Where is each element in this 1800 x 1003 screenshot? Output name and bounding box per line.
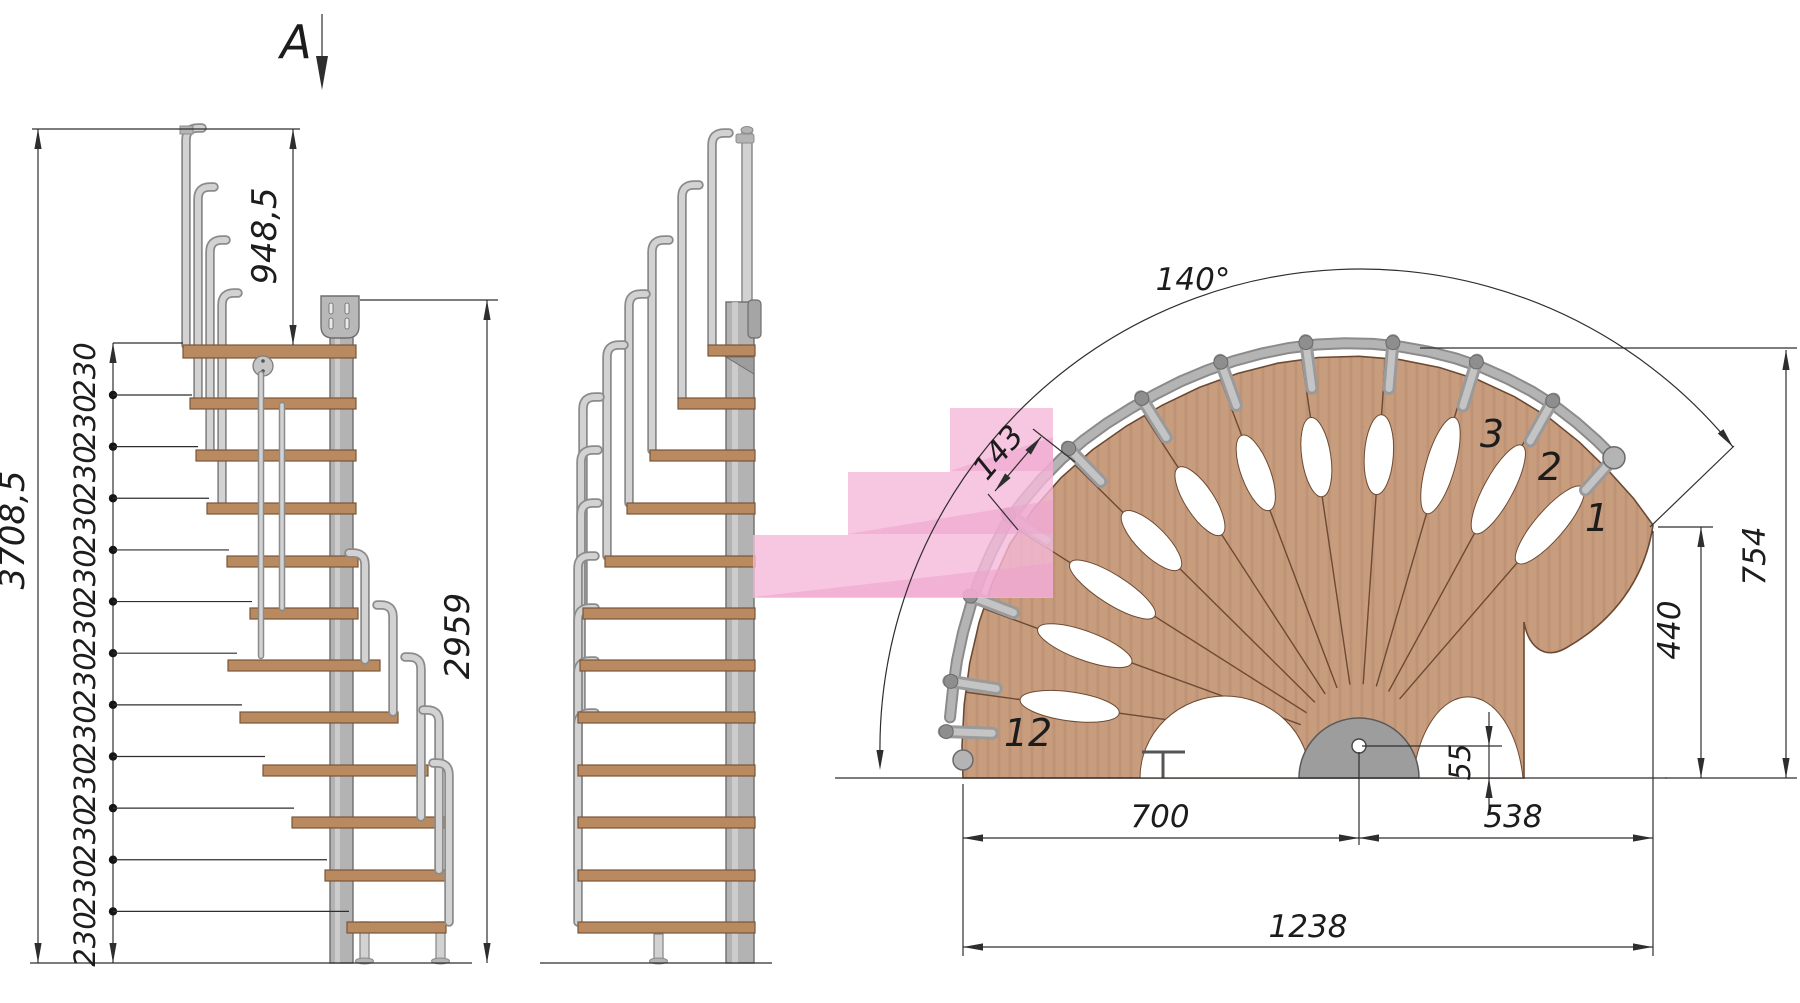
rise-label: 230 <box>68 807 102 862</box>
dimension-arrow <box>1485 778 1492 798</box>
dimension-arrow <box>1697 758 1704 778</box>
rise-label: 230 <box>68 549 102 604</box>
dimension-arrow <box>483 943 490 963</box>
bracket-slot <box>329 318 333 329</box>
step-number-2: 2 <box>1538 445 1562 489</box>
tread <box>250 608 358 619</box>
tread <box>578 870 755 881</box>
dimension-arrow <box>1633 943 1653 950</box>
staircase-technical-drawing: A 3708,5 948,5 2959 230 230 230 230 230 … <box>0 0 1800 1003</box>
rail-clamp <box>180 126 193 134</box>
tread <box>583 608 755 619</box>
tread <box>650 450 755 461</box>
span-right-label: 538 <box>1483 799 1542 835</box>
tread <box>228 660 380 671</box>
tread <box>325 870 452 881</box>
sector-radial <box>1650 446 1734 527</box>
tread <box>578 712 755 723</box>
dimension-arrow <box>1782 350 1789 370</box>
tread <box>196 450 356 461</box>
step-number-1: 1 <box>1585 496 1609 540</box>
bracket-slot <box>345 318 349 329</box>
handrail-baluster <box>629 294 646 503</box>
rail-connector <box>1214 355 1228 369</box>
handrail-baluster <box>682 185 699 398</box>
tread <box>678 398 755 409</box>
section-arrow-head <box>316 56 328 90</box>
bracket-slot <box>329 303 333 314</box>
handrail-baluster <box>652 240 669 450</box>
span-total-label: 1238 <box>1269 909 1348 945</box>
tread <box>227 556 358 567</box>
rail-clamp <box>736 134 754 143</box>
tread <box>240 712 398 723</box>
tread <box>263 765 428 776</box>
rail-connector <box>1546 394 1560 408</box>
rise-label: 230 <box>68 705 102 760</box>
handrail-baluster <box>377 605 393 712</box>
dimension-arrow <box>1697 527 1704 547</box>
handrail-baluster <box>607 345 624 556</box>
dimension-arrow <box>289 129 296 149</box>
dimension-arrow <box>1782 758 1789 778</box>
tread <box>578 765 755 776</box>
overall-height-label: 3708,5 <box>0 471 33 590</box>
rail-connector <box>939 725 953 739</box>
rise-label: 230 <box>68 859 102 914</box>
pole-offset-label: 55 <box>1443 744 1477 781</box>
rise-label: 230 <box>68 445 102 500</box>
tread <box>580 660 755 671</box>
disc-screw <box>261 359 265 363</box>
mount-bracket-edge <box>748 300 761 338</box>
mount-bracket <box>321 296 359 338</box>
tip-height-label: 440 <box>1652 600 1688 659</box>
middle-elevation-view <box>540 127 772 965</box>
rail-end-cap <box>1603 447 1625 469</box>
rail-connector <box>1299 336 1313 350</box>
rise-label: 230 <box>68 756 102 811</box>
mount-height-label: 2959 <box>438 593 478 680</box>
dimension-arrow <box>289 325 296 345</box>
rise-label: 230 <box>68 394 102 449</box>
tread <box>190 398 356 409</box>
dimension-arrow <box>1633 834 1653 841</box>
tread <box>578 922 755 933</box>
sweep-angle-label: 140° <box>1156 262 1231 298</box>
rise-label: 230 <box>68 600 102 655</box>
pole-highlight <box>335 333 340 963</box>
dimension-arrow <box>963 943 983 950</box>
tread <box>183 345 356 358</box>
bracket-slot <box>345 303 349 314</box>
rise-label: 230 <box>68 342 102 397</box>
height-right-label: 754 <box>1737 526 1773 585</box>
dimension-arrow <box>876 750 883 770</box>
dimension-arrow <box>34 129 41 149</box>
baluster-foot <box>953 750 973 770</box>
newel-cap <box>741 127 753 134</box>
dimension-arrow <box>34 943 41 963</box>
rail-connector <box>1135 391 1149 405</box>
rail-connector <box>1469 355 1483 369</box>
dimension-arrow <box>963 834 983 841</box>
newel-tube <box>742 130 752 305</box>
dimension-arrow <box>1339 834 1359 841</box>
dimension-arrow <box>1359 834 1379 841</box>
handrail-baluster <box>405 657 421 817</box>
rise-label: 230 <box>68 911 102 966</box>
upper-height-label: 948,5 <box>245 187 285 284</box>
rail-connector <box>944 674 958 688</box>
dimension-arrow <box>109 943 116 963</box>
section-marker-label: A <box>277 15 311 69</box>
rise-label: 230 <box>68 652 102 707</box>
tread <box>605 556 755 567</box>
step-number-3: 3 <box>1480 412 1504 456</box>
tread <box>627 503 755 514</box>
rise-label: 230 <box>68 497 102 552</box>
tread <box>347 922 446 933</box>
rail-connector <box>1386 336 1400 350</box>
dimension-arrow <box>109 343 116 363</box>
tread <box>578 817 755 828</box>
tread <box>708 345 755 356</box>
dimension-arrow <box>483 300 490 320</box>
step-number-12: 12 <box>1004 711 1052 755</box>
span-left-label: 700 <box>1130 799 1189 835</box>
drawing-canvas: A 3708,5 948,5 2959 230 230 230 230 230 … <box>0 0 1800 1003</box>
center-pole <box>330 333 353 963</box>
